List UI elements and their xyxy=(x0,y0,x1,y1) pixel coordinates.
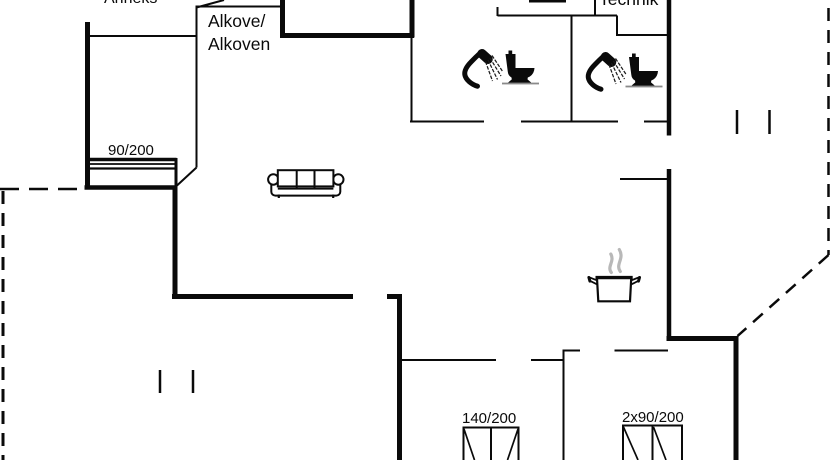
svg-text:Technik: Technik xyxy=(599,0,659,9)
svg-text:90/200: 90/200 xyxy=(108,142,154,159)
svg-text:140/200: 140/200 xyxy=(462,410,516,427)
svg-text:2x90/200: 2x90/200 xyxy=(622,409,684,426)
svg-text:Alkoven: Alkoven xyxy=(208,34,270,54)
svg-text:Alkove/: Alkove/ xyxy=(208,11,266,31)
svg-text:Anneks: Anneks xyxy=(104,0,157,7)
